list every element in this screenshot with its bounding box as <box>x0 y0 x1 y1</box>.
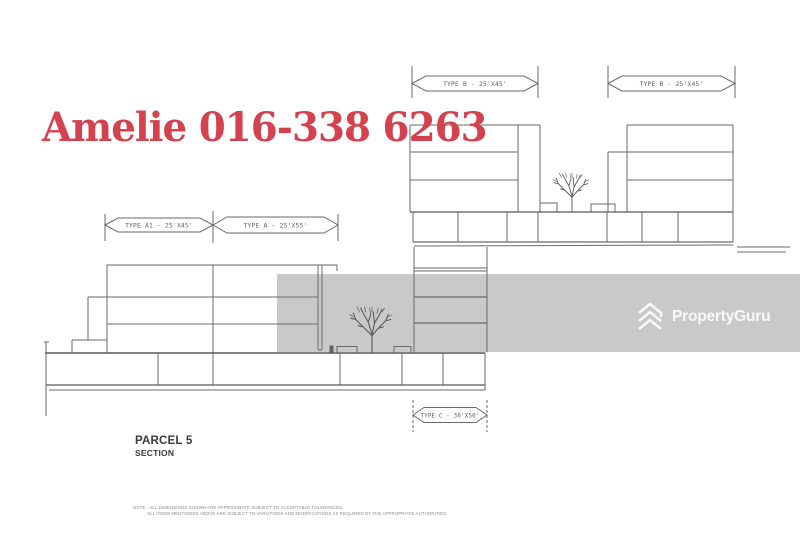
drawing-subtitle: SECTION <box>135 448 192 458</box>
dimension-tag-type-a1: TYPE A1 - 25'X45' <box>125 223 193 230</box>
dimension-tag-type-a: TYPE A - 25'X55' <box>244 223 308 230</box>
propertyguru-watermark: PropertyGuru <box>636 298 786 336</box>
drawing-title: PARCEL 5 <box>135 435 192 447</box>
section-drawing: TYPE A1 - 25'X45' TYPE A - 25'X55' TYPE … <box>0 0 800 550</box>
dimension-tag-type-b-left: TYPE B - 25'X45' <box>443 81 507 88</box>
propertyguru-logo-icon <box>636 300 666 334</box>
left-section-lines <box>44 211 487 432</box>
dimension-tag-type-b-right: TYPE B - 25'X45' <box>640 81 704 88</box>
drawing-title-block: PARCEL 5 SECTION <box>135 435 192 458</box>
propertyguru-logo-text: PropertyGuru <box>672 308 770 326</box>
dimension-tag-type-c: TYPE C - 30'X50' <box>420 414 479 420</box>
agent-contact-overlay: Amelie 016-338 6263 <box>42 104 487 151</box>
listing-image: TYPE A1 - 25'X45' TYPE A - 25'X55' TYPE … <box>0 0 800 550</box>
tree-right <box>553 173 589 211</box>
drawing-notes: NOTE : ALL DIMENSIONS SHOWN ARE APPROXIM… <box>133 505 447 516</box>
note-line-2: ALL ITEMS MENTIONED ABOVE ARE SUBJECT TO… <box>147 511 447 517</box>
tree-left <box>350 307 393 352</box>
